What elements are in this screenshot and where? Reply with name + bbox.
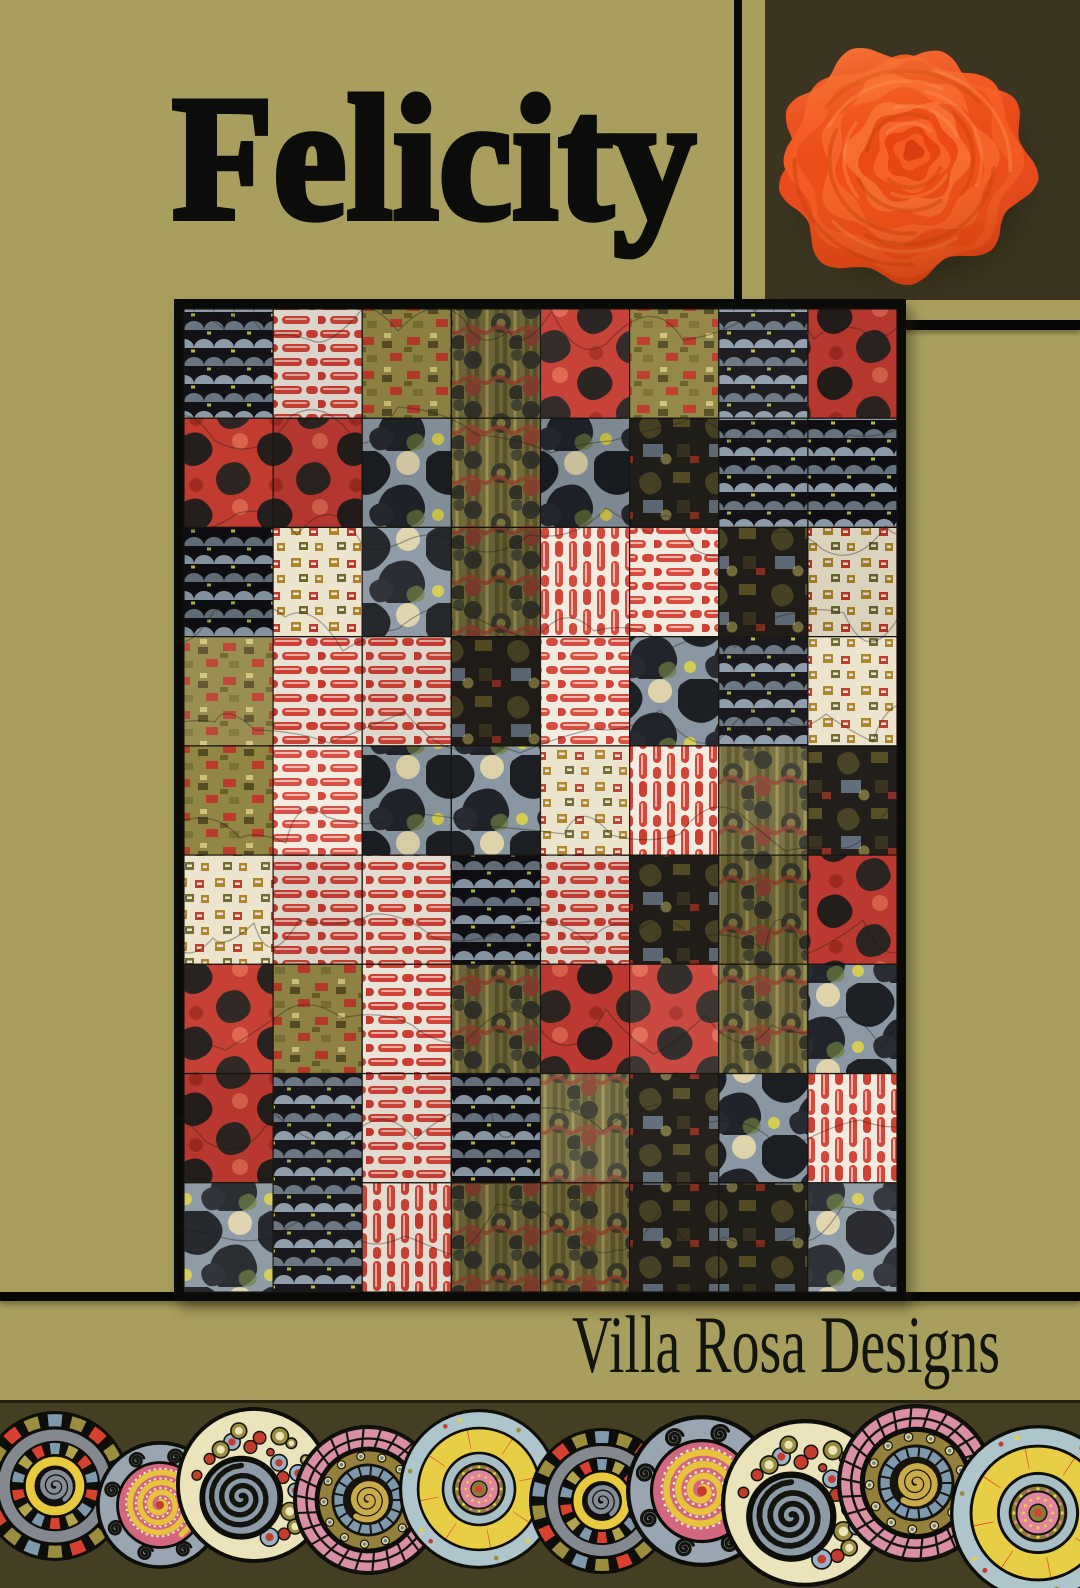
svg-text:Felicity: Felicity: [172, 59, 696, 257]
svg-text:Villa Rosa Designs: Villa Rosa Designs: [572, 1300, 1000, 1390]
